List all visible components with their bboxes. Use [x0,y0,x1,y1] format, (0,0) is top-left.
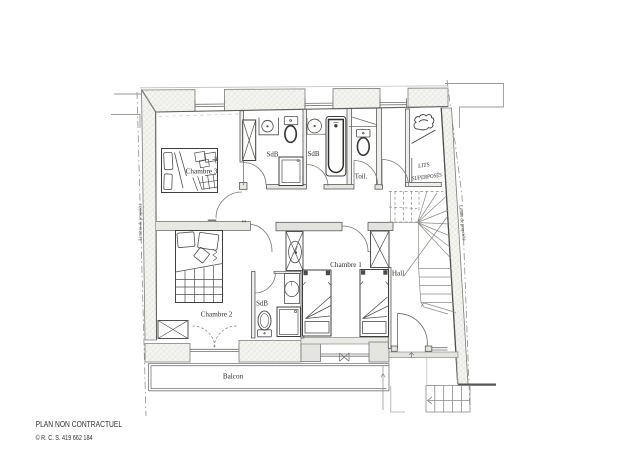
svg-text:LITS: LITS [417,162,430,169]
svg-text:© R. C. S. 419 662 184: © R. C. S. 419 662 184 [36,433,93,442]
svg-text:Chambre 3: Chambre 3 [186,168,218,176]
svg-text:Hall: Hall [392,270,404,278]
svg-text:SdB: SdB [308,151,320,158]
svg-text:Chambre 1: Chambre 1 [330,261,362,269]
svg-text:Toil.: Toil. [355,174,368,181]
svg-text:Balcon: Balcon [223,373,244,381]
svg-text:Chambre 2: Chambre 2 [201,311,233,319]
svg-text:SdB: SdB [267,152,279,159]
svg-text:SUPERPOSÉS: SUPERPOSÉS [411,171,442,183]
svg-text:PLAN NON CONTRACTUEL: PLAN NON CONTRACTUEL [36,420,123,429]
svg-text:SdB: SdB [256,301,268,308]
svg-text:Limites de propriété: Limites de propriété [138,203,143,240]
